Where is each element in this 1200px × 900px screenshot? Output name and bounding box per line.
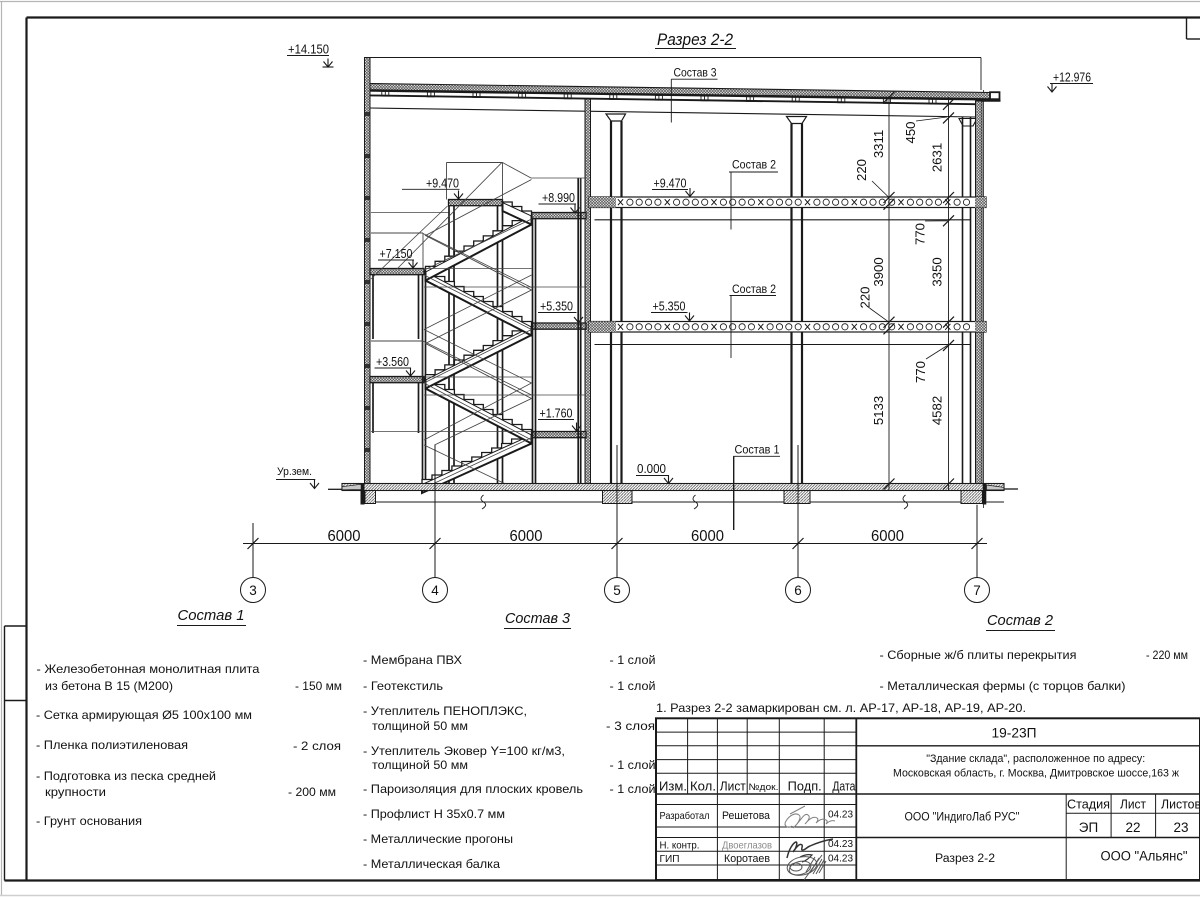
svg-text:2631: 2631 [930, 143, 945, 172]
svg-text:Лист: Лист [720, 780, 746, 794]
svg-text:Состав 3: Состав 3 [505, 610, 571, 627]
svg-text:- 200 мм: - 200 мм [288, 785, 336, 799]
svg-text:6000: 6000 [510, 528, 543, 545]
svg-text:толщиной 50 мм: толщиной 50 мм [372, 719, 468, 733]
svg-text:ГИП: ГИП [660, 853, 680, 865]
svg-text:- Мембрана ПВХ: - Мембрана ПВХ [363, 653, 462, 667]
svg-text:Разрез 2-2: Разрез 2-2 [657, 30, 733, 49]
svg-text:04.23: 04.23 [828, 809, 853, 821]
svg-text:- Профлист Н 35х0.7 мм: - Профлист Н 35х0.7 мм [363, 807, 505, 821]
svg-text:- Подготовка из песка средней: - Подготовка из песка средней [36, 769, 216, 783]
svg-text:4: 4 [431, 583, 439, 598]
svg-text:Состав 3: Состав 3 [674, 66, 717, 80]
svg-text:6: 6 [794, 583, 802, 598]
svg-text:Состав 1: Состав 1 [178, 607, 245, 624]
svg-text:"Здание склада", расположенное: "Здание склада", расположенное по адресу… [926, 753, 1145, 765]
svg-text:Состав 2: Состав 2 [987, 612, 1054, 629]
svg-text:770: 770 [913, 361, 928, 383]
svg-text:0.000: 0.000 [637, 461, 666, 476]
svg-text:- 220 мм: - 220 мм [1146, 648, 1188, 662]
svg-text:- Металлическая балка: - Металлическая балка [363, 857, 500, 871]
svg-text:+5.350: +5.350 [653, 299, 686, 314]
svg-text:220: 220 [858, 286, 873, 308]
svg-text:Стадия: Стадия [1067, 797, 1110, 812]
svg-text:+12.976: +12.976 [1053, 70, 1091, 85]
svg-text:из бетона В 15 (М200): из бетона В 15 (М200) [45, 679, 173, 693]
svg-text:- Сборные ж/б плиты перекрытия: - Сборные ж/б плиты перекрытия [880, 648, 1077, 662]
svg-text:6000: 6000 [328, 528, 361, 545]
svg-text:- Геотекстиль: - Геотекстиль [363, 679, 443, 693]
svg-text:Листов: Листов [1161, 797, 1200, 812]
svg-text:Состав 2: Состав 2 [732, 282, 776, 296]
svg-text:23: 23 [1173, 820, 1188, 835]
svg-text:№док.: №док. [749, 782, 779, 793]
svg-text:Состав 2: Состав 2 [732, 158, 776, 172]
svg-text:- Пароизоляция для плоских кро: - Пароизоляция для плоских кровель [363, 782, 583, 796]
svg-text:6000: 6000 [871, 528, 904, 545]
svg-text:толщиной 50 мм: толщиной 50 мм [372, 758, 468, 772]
svg-text:+9.470: +9.470 [426, 175, 459, 190]
svg-text:3311: 3311 [871, 130, 886, 158]
svg-text:22: 22 [1125, 820, 1140, 835]
svg-text:Н. контр.: Н. контр. [660, 840, 700, 852]
svg-text:04.23: 04.23 [828, 853, 853, 865]
svg-text:- Железобетонная монолитная п: - Железобетонная монолитная плита [37, 662, 260, 676]
svg-text:Состав 1: Состав 1 [735, 443, 780, 457]
svg-text:4582: 4582 [930, 396, 945, 425]
svg-text:Двоеглазов: Двоеглазов [722, 840, 772, 852]
svg-text:- Утеплитель ПЕНОПЛЭКС,: - Утеплитель ПЕНОПЛЭКС, [363, 704, 527, 718]
svg-text:Изм.: Изм. [659, 780, 687, 794]
svg-text:Московская область, г. Москва,: Московская область, г. Москва, Дмитровск… [893, 768, 1180, 780]
svg-text:7: 7 [973, 583, 981, 598]
svg-text:+9.470: +9.470 [654, 176, 687, 191]
svg-text:Дата: Дата [832, 780, 855, 794]
svg-text:- Пленка полиэтиленовая: - Пленка полиэтиленовая [36, 738, 188, 752]
svg-text:3900: 3900 [871, 257, 886, 286]
svg-text:+8.990: +8.990 [542, 190, 575, 205]
svg-text:- Металлические прогоны: - Металлические прогоны [363, 832, 513, 846]
svg-text:- 1 слой: - 1 слой [610, 653, 656, 667]
svg-text:5: 5 [613, 583, 621, 598]
svg-text:Разработал: Разработал [660, 810, 710, 822]
svg-text:ООО "Альянс": ООО "Альянс" [1101, 849, 1188, 864]
svg-text:1. Разрез 2-2 замаркирован см.: 1. Разрез 2-2 замаркирован см. л. АР-17,… [656, 701, 1026, 715]
svg-text:220: 220 [854, 159, 869, 181]
svg-text:770: 770 [913, 223, 928, 245]
svg-text:5133: 5133 [871, 396, 886, 425]
svg-text:+5.350: +5.350 [540, 299, 573, 314]
svg-text:- 150 мм: - 150 мм [295, 679, 342, 693]
svg-text:Решетова: Решетова [722, 810, 771, 822]
svg-text:- 1 слой: - 1 слой [610, 758, 656, 772]
svg-text:Лист: Лист [1120, 797, 1146, 812]
svg-text:3350: 3350 [930, 257, 945, 286]
svg-text:- Грунт основания: - Грунт основания [36, 814, 142, 828]
svg-text:Ур.зем.: Ур.зем. [277, 466, 312, 478]
svg-text:450: 450 [903, 121, 918, 143]
svg-text:- Металлическая фермы (с торцо: - Металлическая фермы (с торцов балки) [880, 679, 1126, 693]
svg-text:- 2 слоя: - 2 слоя [293, 739, 341, 753]
svg-text:крупности: крупности [45, 785, 106, 799]
svg-text:Коротаев: Коротаев [724, 853, 770, 865]
svg-text:Разрез 2-2: Разрез 2-2 [935, 853, 995, 865]
svg-text:Подп.: Подп. [788, 780, 822, 794]
svg-text:+1.760: +1.760 [540, 406, 573, 421]
svg-text:+14.150: +14.150 [288, 42, 329, 57]
svg-text:+3.560: +3.560 [376, 354, 409, 369]
svg-text:6000: 6000 [691, 528, 724, 545]
svg-text:Кол.: Кол. [690, 780, 716, 794]
svg-text:- Утеплитель Эковер Y=100 кг/м: - Утеплитель Эковер Y=100 кг/м3, [363, 744, 565, 758]
svg-text:ЭП: ЭП [1079, 820, 1098, 835]
svg-text:19-23П: 19-23П [992, 725, 1037, 741]
svg-text:- 3 слоя: - 3 слоя [606, 719, 655, 733]
svg-text:- 1 слой: - 1 слой [610, 679, 656, 693]
svg-text:- 1 слой: - 1 слой [610, 782, 656, 796]
svg-text:ООО "ИндигоЛаб РУС": ООО "ИндигоЛаб РУС" [905, 812, 1020, 824]
svg-text:+7.150: +7.150 [380, 246, 413, 261]
svg-text:- Сетка армирующая Ø5 100х100: - Сетка армирующая Ø5 100х100 мм [36, 708, 252, 722]
svg-text:3: 3 [249, 583, 257, 598]
